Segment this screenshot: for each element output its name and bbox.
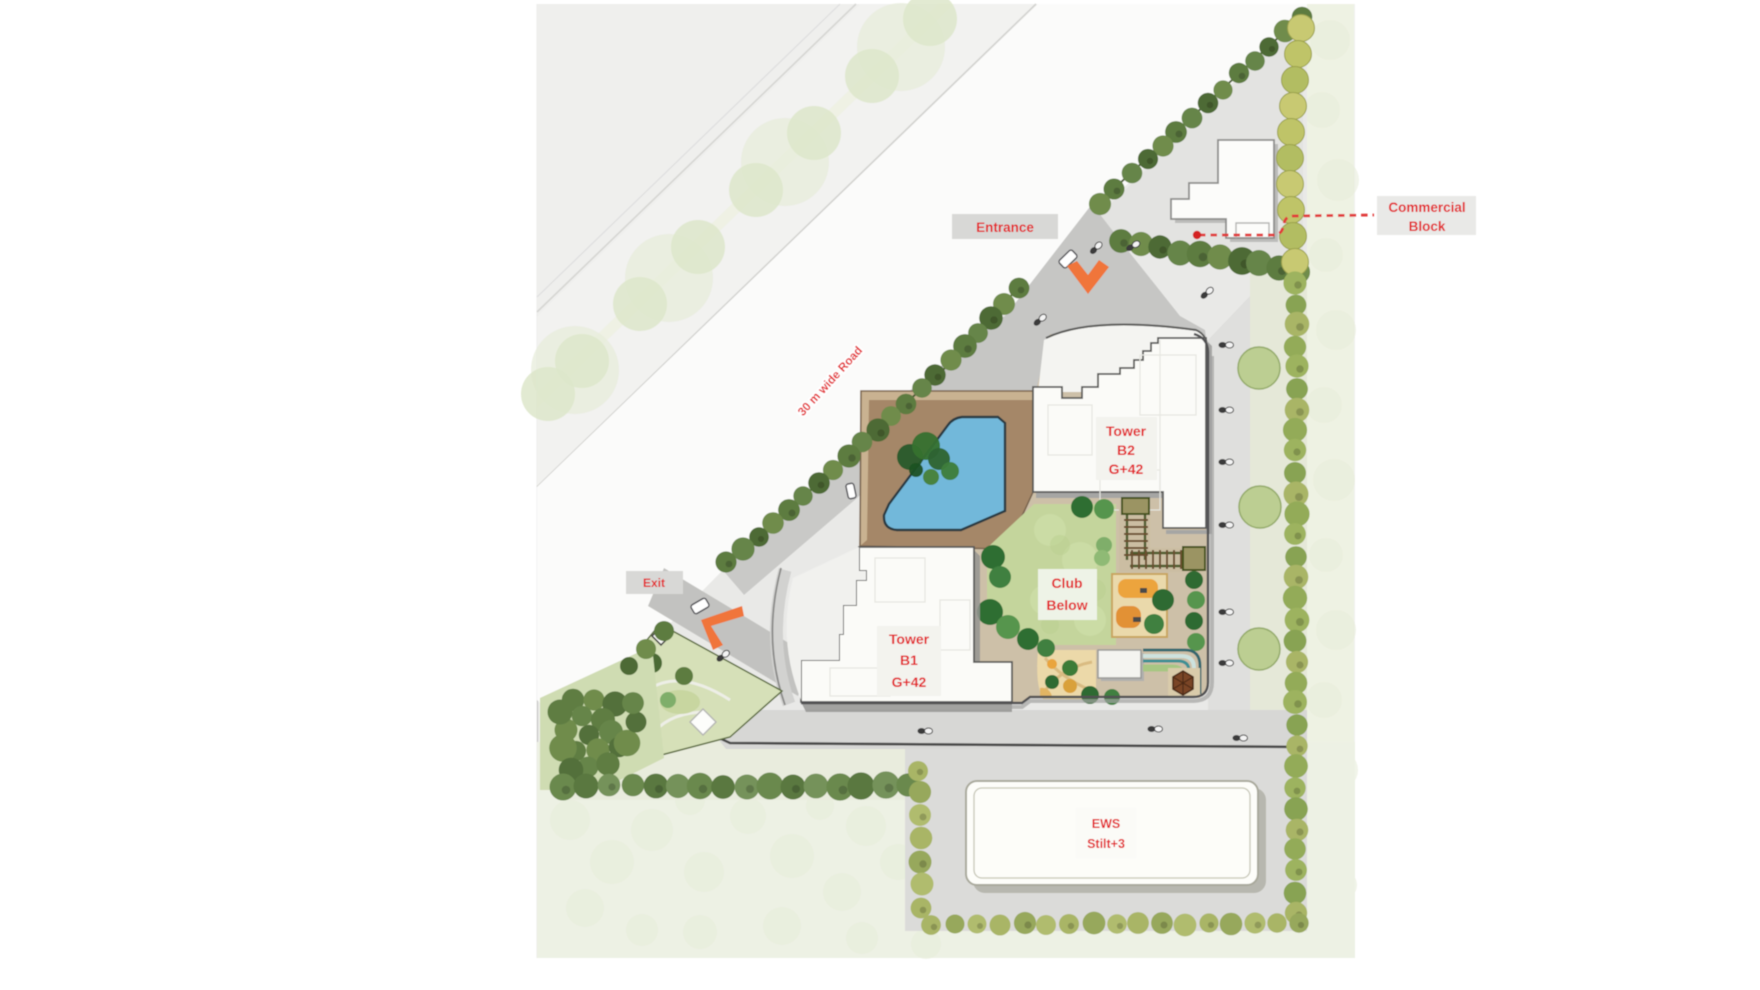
- svg-text:Tower: Tower: [889, 631, 930, 647]
- svg-text:G+42: G+42: [1109, 461, 1144, 477]
- svg-text:Stilt+3: Stilt+3: [1087, 837, 1125, 851]
- svg-text:Entrance: Entrance: [976, 220, 1034, 235]
- svg-text:B1: B1: [900, 652, 918, 668]
- svg-text:Tower: Tower: [1106, 423, 1147, 439]
- svg-text:B2: B2: [1117, 442, 1135, 458]
- svg-text:Exit: Exit: [643, 576, 665, 590]
- svg-text:Club: Club: [1051, 575, 1082, 591]
- svg-text:EWS: EWS: [1092, 817, 1120, 831]
- svg-text:G+42: G+42: [892, 674, 927, 690]
- svg-text:Commercial: Commercial: [1388, 200, 1465, 215]
- svg-text:Block: Block: [1409, 219, 1446, 234]
- svg-text:Below: Below: [1046, 597, 1087, 613]
